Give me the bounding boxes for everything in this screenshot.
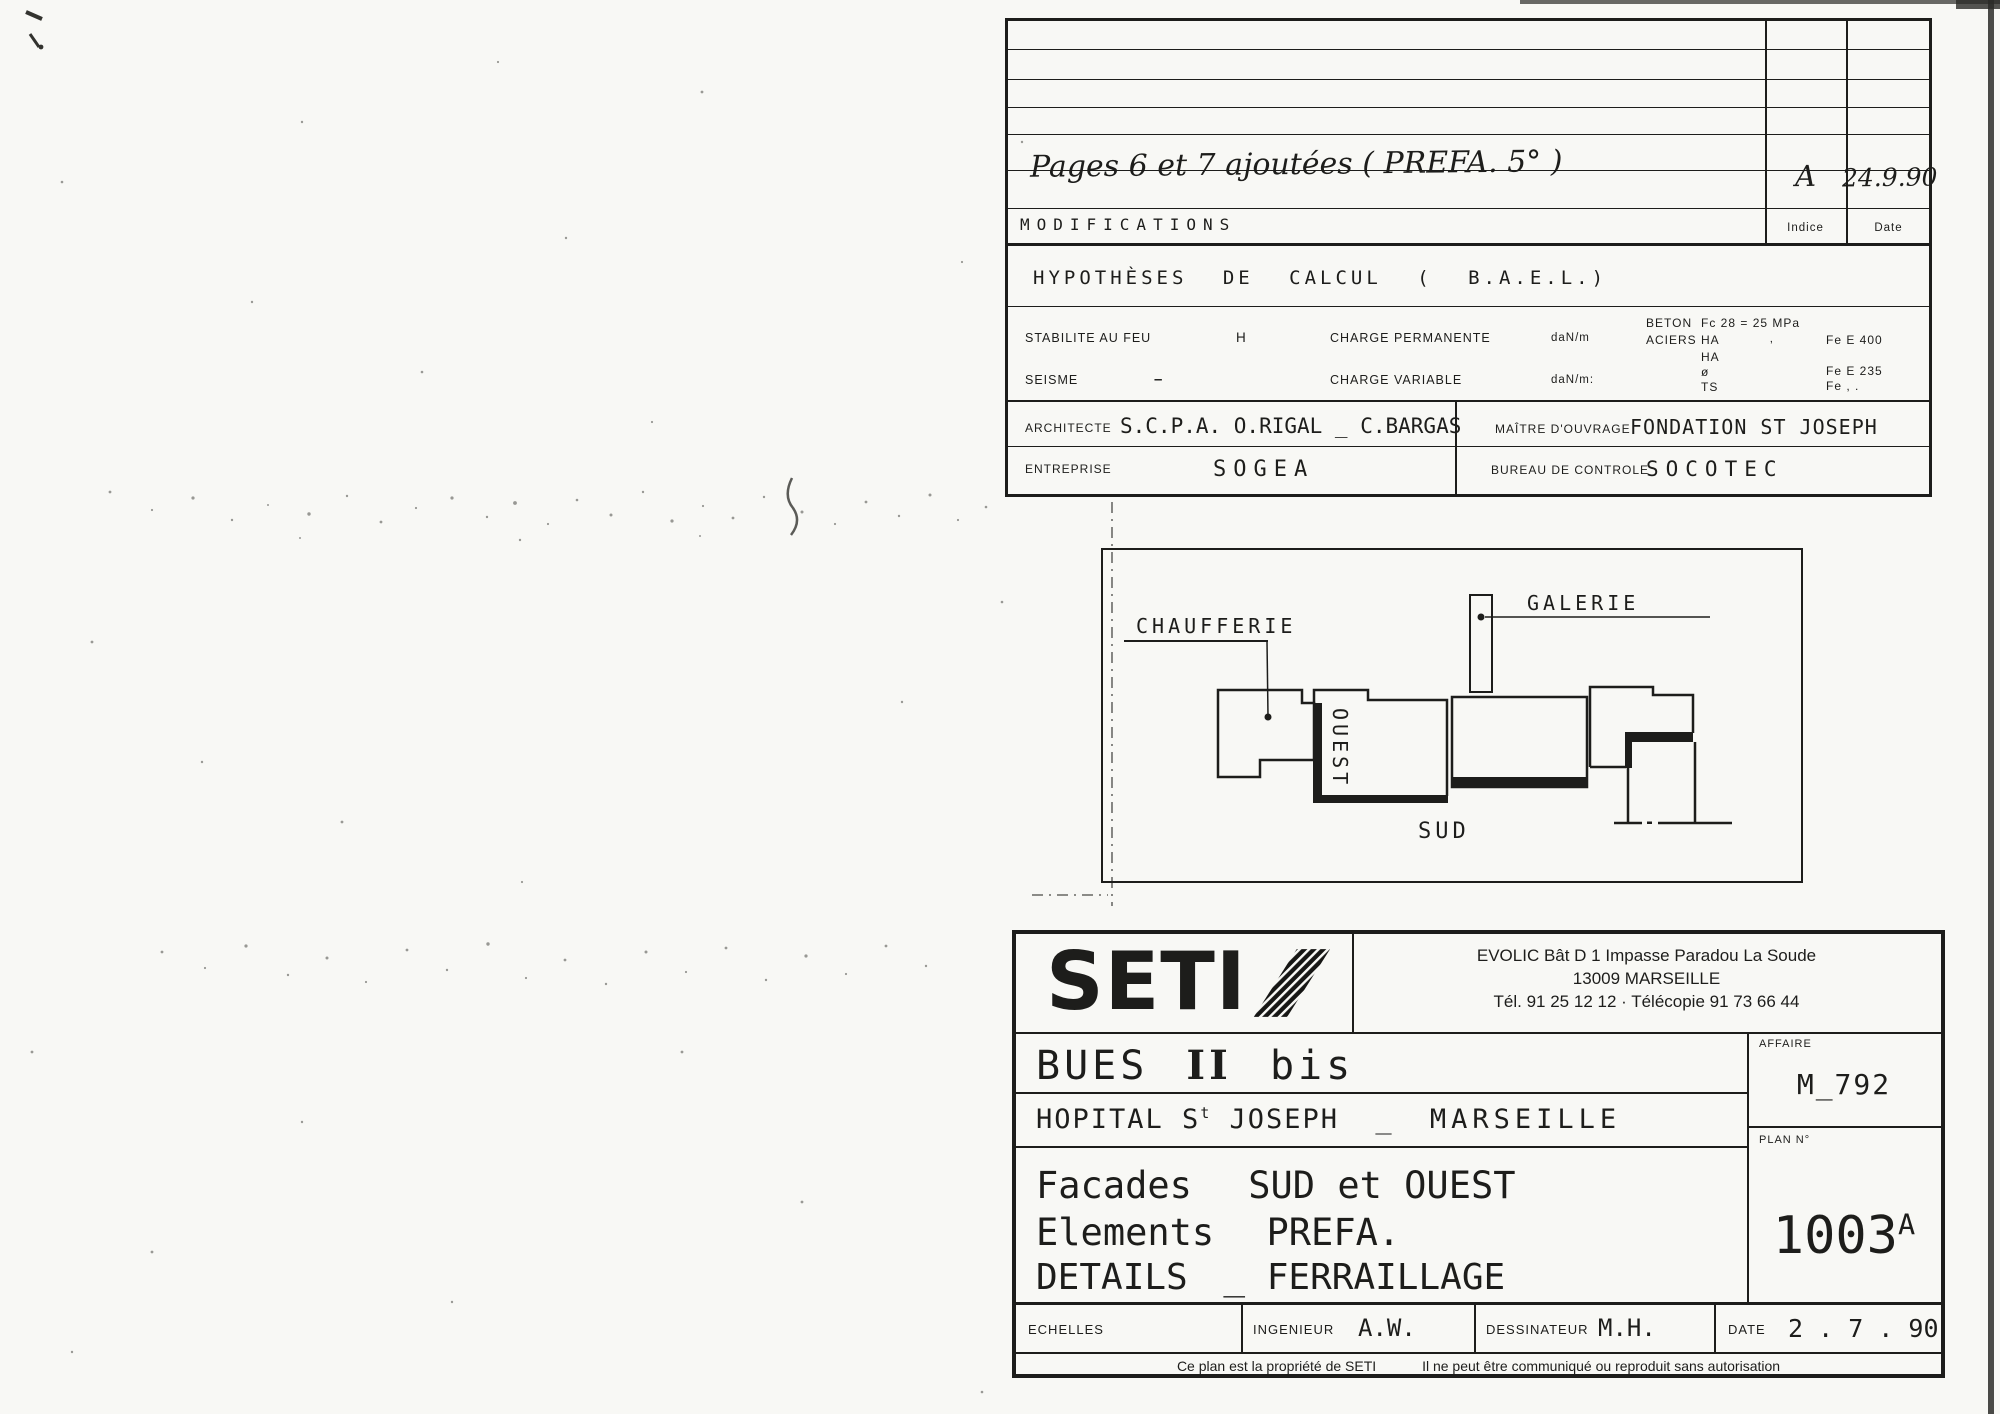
bureau-controle-label: BUREAU DE CONTROLE	[1491, 463, 1649, 477]
charge-permanente-label: CHARGE PERMANENTE	[1330, 331, 1491, 345]
date-label: DATE	[1728, 1322, 1766, 1337]
seisme-label: SEISME	[1025, 373, 1078, 387]
header-bottom-line	[1016, 1032, 1941, 1034]
drawing-title-line3: DETAILS _ FERRAILLAGE	[1036, 1257, 1505, 1298]
plan-label-chaufferie: CHAUFFERIE	[1136, 614, 1296, 638]
acier-type: TS	[1701, 380, 1718, 394]
hopital-row-line	[1016, 1146, 1747, 1148]
revision-indice-handwritten: A	[1765, 159, 1846, 194]
sig-divider-2	[1474, 1302, 1476, 1352]
sig-divider-3	[1714, 1302, 1716, 1352]
svg-text:SETI: SETI	[1046, 946, 1247, 1020]
plan-label-ouest: OUEST	[1328, 708, 1352, 788]
hypotheses-separator	[1008, 306, 1929, 307]
echelles-label: ECHELLES	[1028, 1322, 1104, 1337]
location-city: MARSEILLE	[1430, 1104, 1621, 1135]
charge-variable-unit: daN/m:	[1551, 374, 1594, 386]
aciers-label: ACIERS	[1646, 333, 1697, 347]
hypotheses-title: HYPOTHÈSES DE CALCUL ( B.A.E.L.)	[1033, 267, 1607, 289]
sig-divider-1	[1241, 1302, 1243, 1352]
project-name-roman: II	[1186, 1042, 1231, 1089]
date-column-line	[1846, 21, 1848, 243]
plan-number-value: 1003A	[1747, 1206, 1941, 1266]
address-line-1: EVOLIC Bât D 1 Impasse Paradou La Soude	[1352, 944, 1941, 967]
acier-type: ø	[1701, 365, 1709, 379]
ingenieur-label: INGENIEUR	[1253, 1322, 1334, 1337]
acier-mark: ‚	[1770, 331, 1774, 345]
acier-type: HA	[1701, 350, 1720, 364]
project-name: BUES II bis	[1036, 1042, 1354, 1089]
signature-strip-top-line	[1016, 1302, 1941, 1305]
copyright-top-line	[1016, 1352, 1941, 1354]
title2-lowercase: Elements	[1036, 1211, 1214, 1254]
affaire-label: AFFAIRE	[1759, 1038, 1812, 1050]
ingenieur-value: A.W.	[1358, 1314, 1416, 1342]
location-mid: JOSEPH	[1230, 1104, 1340, 1135]
revision-date-handwritten: 24.9.90	[1842, 163, 1931, 193]
dessinateur-label: DESSINATEUR	[1486, 1322, 1589, 1337]
title3-caps: DETAILS	[1036, 1257, 1188, 1298]
project-name-part3: bis	[1270, 1043, 1354, 1089]
modifications-label: MODIFICATIONS	[1020, 215, 1236, 234]
title-block: SETI EVOLIC Bât D 1 Impasse Paradou La S…	[1012, 930, 1945, 1378]
revision-rule	[1008, 134, 1929, 135]
title2-caps: PREFA.	[1267, 1211, 1401, 1254]
title1-lowercase: Facades	[1036, 1164, 1192, 1207]
parties-row-line	[1008, 446, 1929, 447]
dessinateur-value: M.H.	[1598, 1314, 1656, 1342]
charge-variable-label: CHARGE VARIABLE	[1330, 373, 1462, 387]
acier-grade: Fe E 235	[1826, 364, 1883, 378]
location-prefix: HOPITAL S	[1036, 1104, 1200, 1135]
address-line-2: 13009 MARSEILLE	[1352, 967, 1941, 990]
copyright-notice: Ce plan est la propriété de SETI Il ne p…	[1016, 1358, 1941, 1374]
location-superscript: t	[1200, 1104, 1211, 1122]
charge-permanente-unit: daN/m	[1551, 332, 1590, 344]
beton-value: Fc 28 = 25 MPa	[1701, 316, 1800, 330]
bureau-controle-value: SOCOTEC	[1646, 457, 1784, 481]
entreprise-label: ENTREPRISE	[1025, 462, 1112, 476]
acier-grade: Fe E 400	[1826, 333, 1883, 347]
date-value: 2 . 7 . 90	[1788, 1314, 1939, 1343]
stabilite-label: STABILITE AU FEU	[1025, 331, 1151, 345]
maitre-ouvrage-value: FONDATION ST JOSEPH	[1630, 415, 1878, 439]
drawing-title-line1: Facades SUD et OUEST	[1036, 1164, 1516, 1207]
project-location: HOPITAL St JOSEPH _ MARSEILLE	[1036, 1104, 1621, 1135]
title3-suffix: _ FERRAILLAGE	[1223, 1257, 1505, 1298]
revision-entry-handwritten: Pages 6 et 7 ajoutées ( PREFA. 5° )	[1030, 144, 1563, 185]
drawing-title-line2: Elements PREFA.	[1036, 1211, 1400, 1254]
date-label: Date	[1846, 222, 1931, 234]
revision-rule	[1008, 208, 1929, 209]
company-address: EVOLIC Bât D 1 Impasse Paradou La Soude …	[1352, 944, 1941, 1013]
affaire-value: M_792	[1747, 1068, 1941, 1101]
copyright-part1: Ce plan est la propriété de SETI	[1177, 1358, 1376, 1374]
plan-label-sud: SUD	[1418, 819, 1470, 844]
location-dash: _	[1375, 1104, 1393, 1135]
entreprise-value: SOGEA	[1213, 457, 1314, 482]
beton-label: BETON	[1646, 316, 1692, 330]
hypotheses-block: Pages 6 et 7 ajoutées ( PREFA. 5° ) A 24…	[1005, 18, 1932, 497]
plan-number-label: PLAN N°	[1759, 1134, 1810, 1146]
revision-rule	[1008, 79, 1929, 80]
architecte-label: ARCHITECTE	[1025, 421, 1112, 435]
acier-type: HA	[1701, 333, 1720, 347]
affaire-bottom-line	[1747, 1126, 1941, 1128]
acier-grade: Fe , .	[1826, 379, 1859, 393]
title1-caps: SUD et OUEST	[1248, 1164, 1515, 1207]
address-line-3: Tél. 91 25 12 12 · Télécopie 91 73 66 44	[1352, 990, 1941, 1013]
modifications-separator	[1008, 243, 1929, 246]
architecte-value: S.C.P.A. O.RIGAL _ C.BARGAS	[1120, 414, 1461, 438]
revision-rule	[1008, 107, 1929, 108]
seisme-value: –	[1154, 371, 1163, 388]
indice-label: Indice	[1765, 222, 1846, 234]
seti-logo: SETI	[1046, 946, 1332, 1020]
plan-number-index: A	[1898, 1208, 1915, 1242]
plan-number: 1003	[1773, 1206, 1898, 1266]
parties-separator	[1008, 400, 1929, 402]
plan-label-galerie: GALERIE	[1527, 591, 1639, 615]
bues-row-line	[1016, 1092, 1747, 1094]
revision-rule	[1008, 49, 1929, 50]
maitre-ouvrage-label: MAÎTRE D'OUVRAGE	[1495, 422, 1631, 436]
scanned-drawing-sheet: Pages 6 et 7 ajoutées ( PREFA. 5° ) A 24…	[0, 0, 2000, 1414]
indice-column-line	[1765, 21, 1767, 243]
site-plan-figure: CHAUFFERIE GALERIE OUEST SUD	[1080, 540, 1820, 910]
project-name-part1: BUES	[1036, 1043, 1148, 1089]
stabilite-value: H	[1236, 330, 1247, 345]
copyright-part2: Il ne peut être communiqué ou reproduit …	[1422, 1358, 1780, 1374]
